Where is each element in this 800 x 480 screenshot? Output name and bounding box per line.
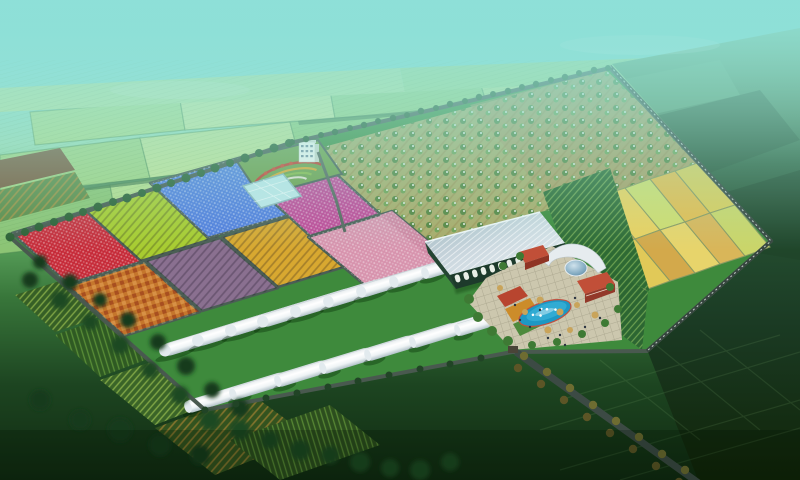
dome <box>565 260 587 276</box>
aerial-rendering <box>0 0 800 480</box>
bottom-vignette <box>0 430 800 480</box>
haze-overlay <box>0 0 800 250</box>
entrance-gate <box>508 346 518 353</box>
scene-canvas <box>0 0 800 480</box>
